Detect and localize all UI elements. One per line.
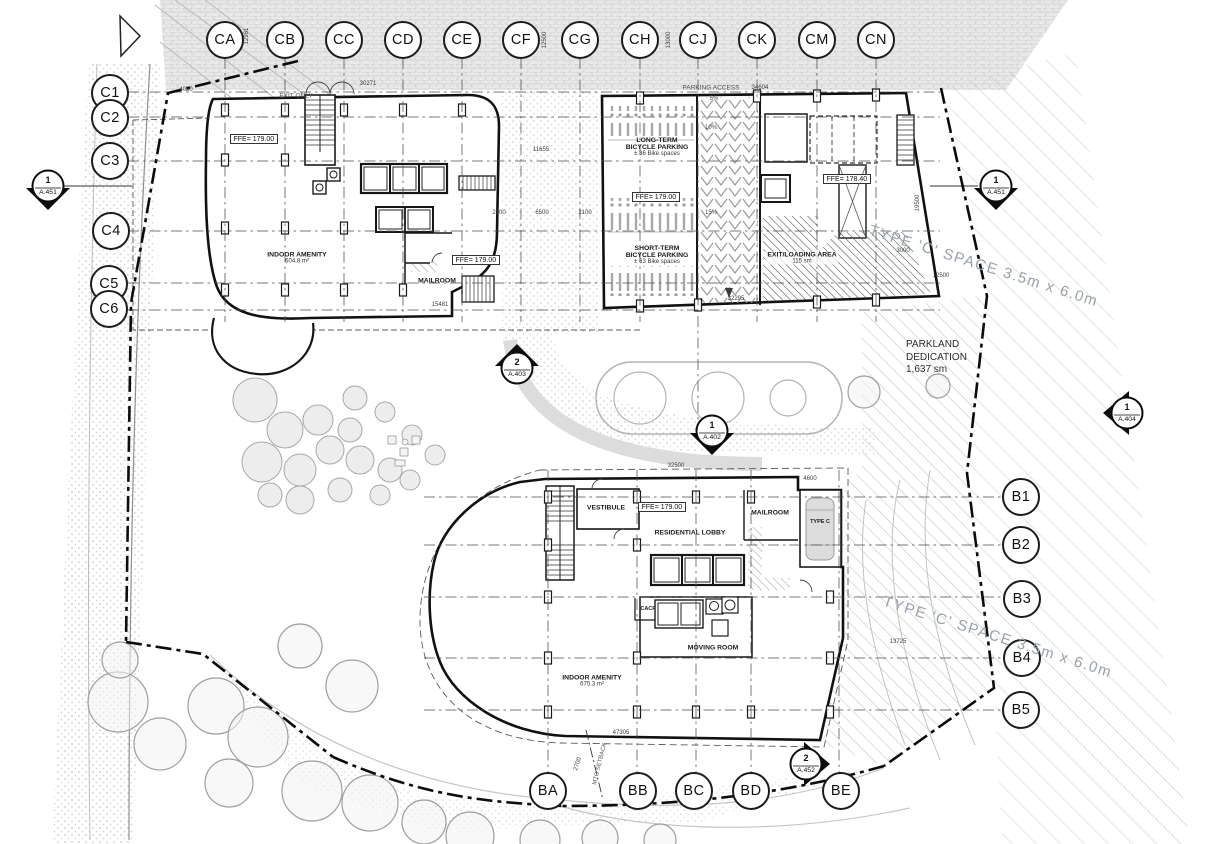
section-number: 1 (688, 420, 736, 430)
room-name: BICYCLE PARKING (626, 252, 689, 259)
dimension-text: 32295 (728, 296, 745, 302)
section-sheet: A.404 (1103, 416, 1151, 423)
room-label-indoor-amenity-north: INDOOR AMENITY 604.8 m² (267, 252, 326, 265)
dimension-text: 15481 (432, 302, 449, 308)
grid-bubble: BC (675, 772, 713, 810)
room-label-mailroom-south: MAILROOM (751, 510, 789, 517)
dimension-text: 3000 (896, 248, 909, 254)
section-marker: 2 A.452 (782, 740, 830, 788)
grid-bubble: C3 (91, 142, 129, 180)
section-number: 1 (1103, 402, 1151, 412)
dimension-text: 4600 (803, 476, 816, 482)
grid-bubble: CD (384, 21, 422, 59)
section-marker: 1 A.404 (1103, 389, 1151, 437)
section-arrow-left-icon (1103, 389, 1151, 437)
slope-label: 5% (710, 96, 719, 102)
section-number: 2 (782, 753, 830, 763)
parkland-dedication-label: PARKLAND DEDICATION 1,637 sm (906, 339, 967, 377)
room-label-mailroom-north: MAILROOM (418, 278, 456, 285)
room-label-indoor-amenity-south: INDOOR AMENITY 675.3 m² (562, 675, 621, 688)
dimension-text: 11655 (533, 147, 549, 153)
grid-bubble: CN (857, 21, 895, 59)
section-sheet: A.451 (24, 189, 72, 196)
grid-bubble: C4 (92, 212, 130, 250)
slope-label: 10% (705, 125, 717, 131)
section-sheet: A.402 (688, 434, 736, 441)
room-name: INDOOR AMENITY (562, 675, 621, 682)
section-number: 2 (493, 357, 541, 367)
room-name: SHORT-TERM (626, 245, 689, 252)
grid-bubble: B5 (1002, 691, 1040, 729)
ffe-elevation-label: FFE= 179.00 (632, 192, 680, 202)
grid-bubble: BB (619, 772, 657, 810)
section-arrow-down-icon (972, 162, 1020, 210)
grid-bubble: CK (738, 21, 776, 59)
dimension-text: 12500 (933, 273, 950, 279)
room-name: LONG-TERM (626, 137, 689, 144)
room-label-vestibule: VESTIBULE (587, 505, 625, 512)
dimension-text: 4050 (179, 87, 192, 93)
north-arrow-icon (120, 16, 140, 56)
section-number: 1 (24, 175, 72, 185)
room-name: EXIT/LOADING AREA (767, 252, 836, 259)
dimension-text: 12981 (244, 28, 250, 45)
grid-bubble: CJ (679, 21, 717, 59)
room-label-exit-loading: EXIT/LOADING AREA 115 sm (765, 252, 838, 265)
grid-bubble: BD (732, 772, 770, 810)
room-label-cacf: CACF (640, 606, 655, 612)
section-sheet: A.403 (493, 371, 541, 378)
slope-label: 15% (705, 210, 717, 216)
parkland-area: 1,637 sm (906, 364, 967, 377)
grid-bubble: B1 (1002, 478, 1040, 516)
grid-bubble: CC (325, 21, 363, 59)
room-label-short-term-bike: SHORT-TERM BICYCLE PARKING ± 63 Bike spa… (626, 245, 689, 265)
dimension-text: 13000 (666, 32, 672, 49)
section-sheet: A.451 (972, 189, 1020, 196)
section-marker: 1 A.451 (24, 162, 72, 210)
section-marker: 2 A.403 (493, 344, 541, 392)
dimension-text: 12500 (542, 32, 548, 49)
section-sheet: A.452 (782, 767, 830, 774)
dimension-text: 34604 (752, 85, 769, 91)
grid-bubble: CH (621, 21, 659, 59)
room-label-long-term-bike: LONG-TERM BICYCLE PARKING ± 36 Bike spac… (626, 137, 689, 157)
dimension-text: 32500 (668, 463, 685, 469)
exit-only-label: EXIT ONLY (279, 93, 312, 100)
grid-bubble: CM (798, 21, 836, 59)
section-arrow-down-icon (24, 162, 72, 210)
room-area: 675.3 m² (562, 682, 621, 688)
room-label-moving-room: MOVING ROOM (688, 645, 739, 652)
ffe-elevation-label: FFE= 179.00 (452, 255, 500, 265)
grid-bubble: CB (266, 21, 304, 59)
room-count: ± 63 Bike spaces (626, 259, 689, 265)
dimension-text: 30271 (360, 81, 377, 87)
grid-bubble: B3 (1003, 580, 1041, 618)
dimension-text: 19500 (915, 195, 921, 212)
grid-bubble: CG (561, 21, 599, 59)
grid-bubble: CA (206, 21, 244, 59)
room-area: 604.8 m² (267, 259, 326, 265)
room-name: BICYCLE PARKING (626, 144, 689, 151)
section-marker: 1 A.451 (972, 162, 1020, 210)
section-marker: 1 A.402 (688, 407, 736, 455)
room-area: 115 sm (767, 259, 836, 265)
ffe-elevation-label: FFE= 179.00 (230, 134, 278, 144)
section-arrow-up-icon (493, 344, 541, 392)
site-plan-sheet: CA CB CC CD CE CF CG CH CJ CK CM CN C1 C… (0, 0, 1221, 844)
parkland-line: DEDICATION (906, 352, 967, 365)
room-label-residential-lobby: RESIDENTIAL LOBBY (655, 530, 726, 537)
grid-bubble: B2 (1002, 526, 1040, 564)
grid-bubble: BA (529, 772, 567, 810)
dimension-text: 2100 (492, 210, 505, 216)
grid-bubble: C6 (90, 290, 128, 328)
grid-bubble: C2 (91, 99, 129, 137)
section-arrow-down-icon (688, 407, 736, 455)
dimension-text: 13725 (890, 639, 907, 645)
section-number: 1 (972, 175, 1020, 185)
dimension-text: 6500 (535, 210, 548, 216)
room-count: ± 36 Bike spaces (626, 151, 689, 157)
grid-bubble: CF (502, 21, 540, 59)
ffe-elevation-label: FFE= 179.00 (638, 502, 686, 512)
dimension-text: 47305 (613, 730, 630, 736)
grid-bubble: CE (443, 21, 481, 59)
dimension-text: 2100 (578, 210, 591, 216)
parking-access-label: PARKING ACCESS (683, 85, 740, 92)
parkland-line: PARKLAND (906, 339, 967, 352)
room-name: INDOOR AMENITY (267, 252, 326, 259)
ffe-elevation-label: FFE= 178.40 (823, 174, 871, 184)
room-label-type-c-stall: TYPE C (810, 519, 830, 525)
section-arrow-right-icon (782, 740, 830, 788)
